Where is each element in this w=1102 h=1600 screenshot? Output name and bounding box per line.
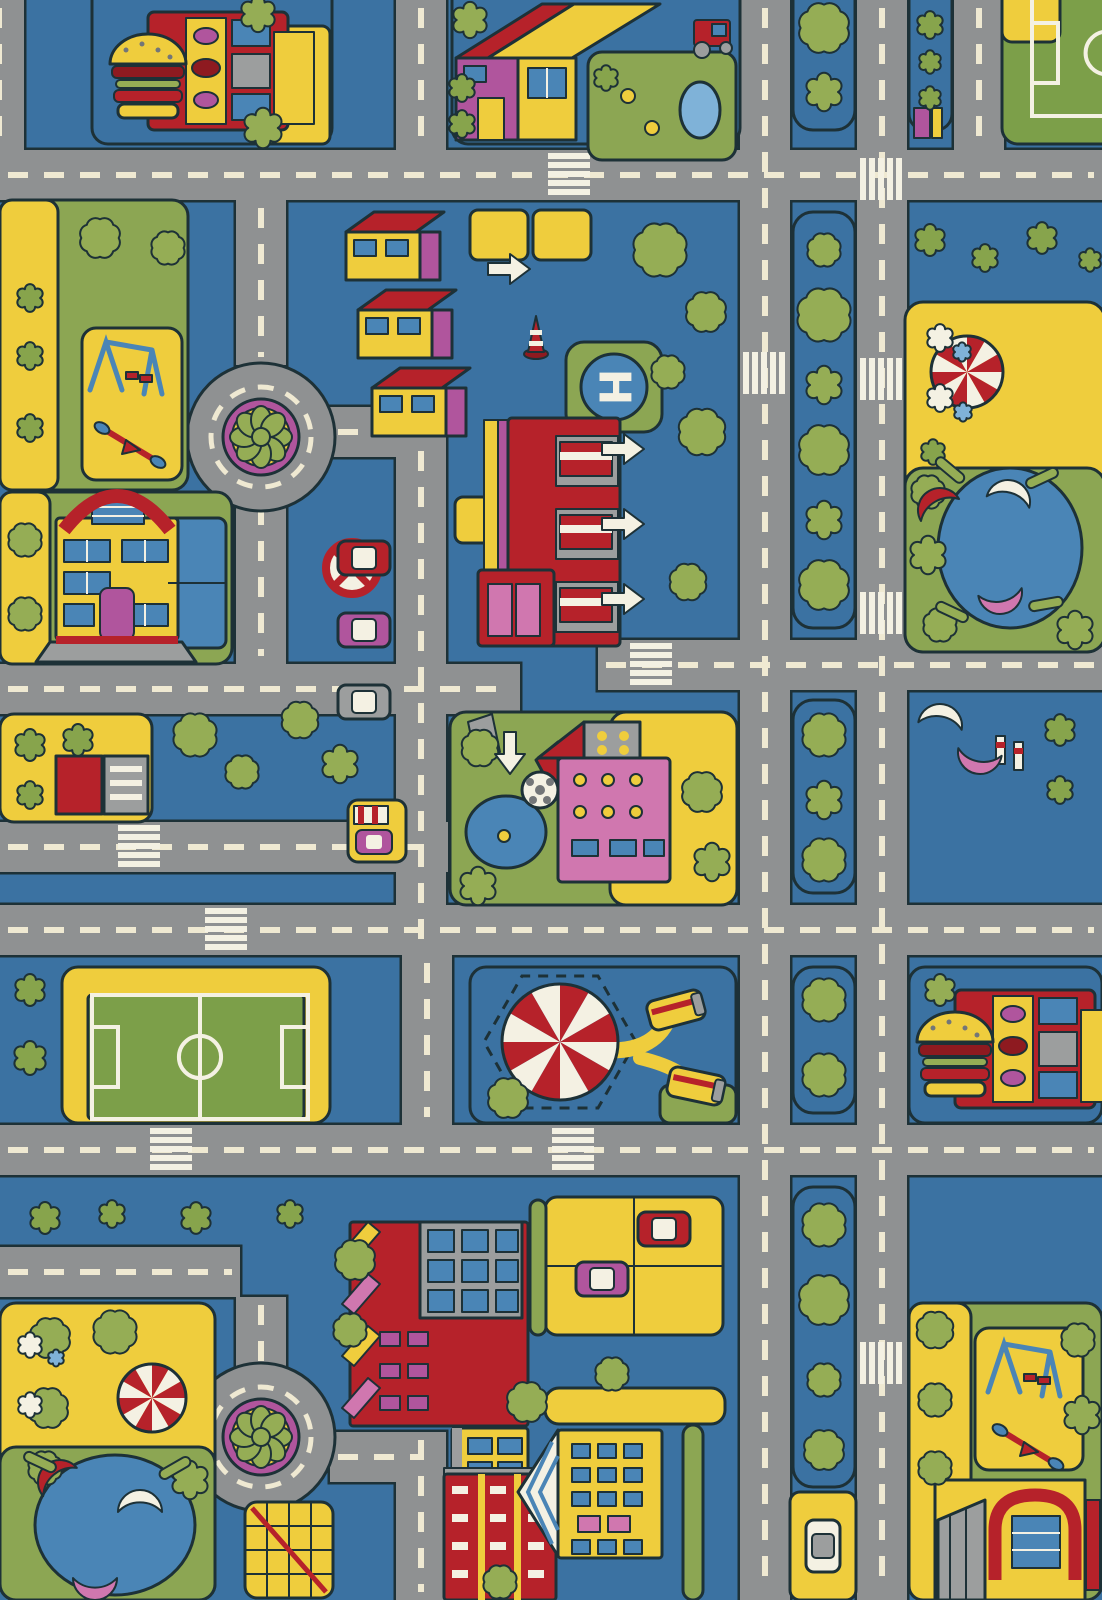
bush: [99, 1200, 124, 1228]
rug-illustration: H: [0, 0, 1102, 1600]
tree: [651, 355, 684, 388]
tree: [918, 1451, 951, 1484]
flower-deco: [927, 384, 952, 412]
city-block: [82, 328, 182, 480]
bush: [917, 11, 942, 39]
roundabout: [187, 363, 335, 511]
helipad: H: [581, 354, 647, 420]
tree: [806, 781, 841, 819]
bush: [277, 1200, 302, 1228]
tree: [802, 838, 845, 881]
bush: [17, 781, 42, 809]
circus-tent: [118, 1364, 186, 1432]
bush: [449, 110, 474, 138]
tree: [806, 501, 841, 539]
bush: [1045, 714, 1074, 746]
tree: [333, 1313, 366, 1346]
truck-depot: [56, 756, 148, 814]
tree: [670, 564, 706, 600]
flower-deco: [954, 402, 972, 421]
helipad-label: H: [589, 369, 640, 406]
flower-deco: [953, 342, 971, 361]
hamburger-icon: [110, 34, 186, 118]
fire-station: [478, 418, 620, 646]
median-kiosk: [914, 108, 942, 138]
city-block: [683, 1425, 703, 1600]
tree: [806, 366, 841, 404]
tree: [8, 523, 41, 556]
duck-icon: [498, 830, 510, 842]
tree: [483, 1565, 516, 1598]
bush: [17, 342, 42, 370]
city-block: [533, 210, 591, 260]
play-rug-city-map: H: [0, 0, 1102, 1600]
tree: [802, 713, 845, 756]
city-block: [530, 1200, 546, 1335]
bush: [17, 414, 42, 442]
bush: [63, 724, 92, 756]
tree: [804, 1430, 844, 1470]
tree: [917, 1312, 953, 1348]
flower-deco: [48, 1350, 64, 1367]
tree: [1064, 1396, 1099, 1434]
tree: [925, 974, 954, 1006]
bush: [449, 74, 474, 102]
door: [100, 588, 134, 640]
flower-deco: [18, 1392, 41, 1418]
parked-car: [576, 1262, 628, 1296]
tree: [595, 1357, 628, 1390]
hamburger-icon: [917, 1012, 993, 1096]
bush: [972, 244, 997, 272]
tree: [1057, 611, 1092, 649]
tree: [807, 233, 840, 266]
city-block: [470, 210, 528, 260]
tree: [151, 231, 184, 264]
tree: [453, 2, 486, 38]
flower-deco: [18, 1332, 41, 1358]
bush: [594, 65, 617, 91]
tree: [488, 1078, 528, 1118]
tree: [335, 1240, 375, 1280]
soccer-ball: [522, 772, 558, 808]
tree: [686, 292, 726, 332]
flower-deco: [927, 324, 952, 352]
tree: [507, 1382, 547, 1422]
bush: [181, 1202, 210, 1234]
bus-stop: [354, 806, 392, 854]
tree: [173, 713, 216, 756]
city-block: [88, 995, 304, 1119]
house: [372, 368, 470, 436]
road-segment: [0, 0, 24, 150]
city-block: [545, 1388, 725, 1424]
tree: [462, 730, 498, 766]
city-block: [0, 492, 50, 664]
bush: [14, 1041, 45, 1075]
tree: [802, 1053, 845, 1096]
tree: [322, 745, 357, 783]
bush: [919, 86, 940, 109]
door: [478, 98, 504, 140]
tree: [1061, 1323, 1094, 1356]
tree: [8, 597, 41, 630]
tree: [460, 867, 495, 905]
tree: [802, 1203, 845, 1246]
house: [346, 212, 444, 280]
tree: [80, 218, 120, 258]
tree: [918, 1383, 951, 1416]
tree: [802, 978, 845, 1021]
bush: [1047, 776, 1072, 804]
bush: [1079, 248, 1100, 271]
bush: [15, 729, 44, 761]
tree: [910, 536, 945, 574]
house: [358, 290, 456, 358]
bush: [1027, 222, 1056, 254]
mansion-partial: [935, 1480, 1100, 1600]
parked-car: [338, 541, 390, 575]
bush: [15, 974, 44, 1006]
tree: [93, 1310, 136, 1353]
chicken-icon: [621, 89, 635, 103]
tree: [807, 1363, 840, 1396]
parked-car: [338, 613, 390, 647]
bush: [17, 284, 42, 312]
tree: [282, 702, 318, 738]
tree: [682, 772, 722, 812]
tree: [245, 108, 282, 148]
tree: [694, 843, 729, 881]
tree: [225, 755, 258, 788]
tree: [806, 73, 841, 111]
parked-car: [638, 1212, 690, 1246]
bush: [30, 1202, 59, 1234]
bush: [919, 50, 940, 73]
bush: [915, 224, 944, 256]
farm-pond: [680, 82, 720, 138]
chicken-icon: [645, 121, 659, 135]
parked-car: [338, 685, 390, 719]
parked-car: [806, 1520, 840, 1572]
